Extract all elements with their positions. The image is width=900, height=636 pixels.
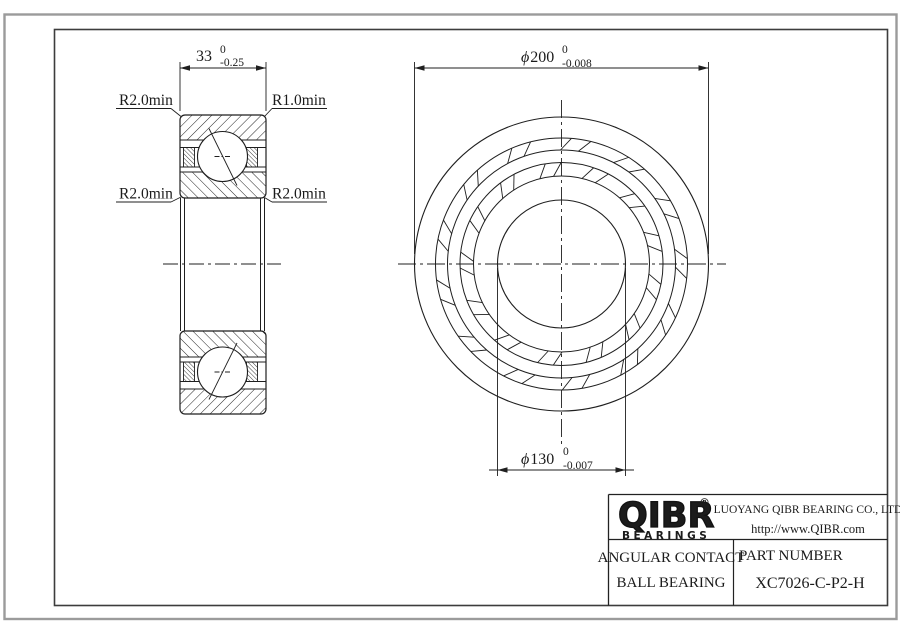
title-block: QIBR ® BEARINGS LUOYANG QIBR BEARING CO.… [598, 495, 900, 606]
front-view: ϕ200 0 -0.008 ϕ130 0 -0.007 [398, 44, 726, 476]
section-upper [180, 115, 266, 198]
part-number-label: PART NUMBER [739, 548, 843, 564]
section-view: 33 0 -0.25 R2.0min R1.0min R2.0min R2.0m… [116, 44, 327, 414]
part-number: XC7026-C-P2-H [755, 575, 865, 592]
cage-pocket-line [504, 369, 519, 375]
company-website: http://www.QIBR.com [751, 522, 865, 536]
section-lower [180, 331, 266, 414]
bore-dim-value: 130 [530, 451, 554, 468]
product-type-line2: BALL BEARING [616, 575, 725, 591]
cage-block-lower-left [184, 362, 195, 382]
cage-pocket-line [582, 374, 590, 388]
cage-pocket-line [437, 280, 451, 288]
width-dim-tol-upper: 0 [220, 44, 226, 56]
cage-block-upper-left [184, 148, 195, 168]
width-dim-value: 33 [196, 48, 212, 65]
cage-pocket-line [629, 206, 645, 208]
width-dim-tol-lower: -0.25 [220, 57, 244, 69]
cage-pocket-line [562, 378, 572, 391]
cage-pocket-line [554, 163, 562, 177]
bearing-drawing: 33 0 -0.25 R2.0min R1.0min R2.0min R2.0m… [0, 0, 900, 636]
bore-dim-tol-lower: -0.007 [563, 460, 593, 472]
cage-pocket-line [471, 350, 487, 351]
cage-pocket-line [458, 336, 474, 337]
cage-pocket-line [661, 320, 666, 335]
cage-pocket-line [595, 174, 608, 183]
cage-pocket-line [470, 220, 479, 233]
cage-pocket-line [494, 335, 509, 340]
fillet-label-mid-left: R2.0min [119, 186, 173, 203]
cage-pocket-line [461, 252, 474, 261]
cage-pocket-line [629, 169, 645, 172]
od-dim-tol-upper: 0 [562, 44, 568, 56]
cage-pocket-line [619, 194, 634, 198]
cage-pocket-line [522, 375, 535, 384]
cage-block-upper-right [247, 148, 258, 168]
bore-dim-tol-upper: 0 [563, 446, 569, 458]
cage-pocket-line [621, 360, 624, 376]
cage-pocket-line [438, 239, 448, 251]
cage-pocket-line [477, 170, 478, 186]
cage-pocket-line [675, 249, 688, 258]
cage-pocket-line [646, 288, 656, 300]
cage-pocket-line [601, 342, 603, 358]
cage-pocket-line [668, 303, 675, 317]
cage-pocket-line [626, 324, 629, 339]
registered-mark: ® [699, 496, 710, 509]
company-name: LUOYANG QIBR BEARING CO., LTD [714, 504, 900, 516]
svg-text:ϕ200: ϕ200 [521, 49, 554, 66]
product-type-line1: ANGULAR CONTACT [598, 550, 745, 566]
cage-pocket-line [467, 300, 483, 302]
cage-pocket-line [501, 183, 503, 199]
fillet-label-top-left: R2.0min [119, 92, 173, 109]
fillet-label-top-right: R1.0min [272, 92, 326, 109]
od-dim-value: 200 [530, 49, 554, 66]
cage-pocket-line [538, 351, 549, 363]
od-dim-tol-lower: -0.008 [562, 58, 592, 70]
brand-subtitle: BEARINGS [622, 530, 710, 542]
cage-pocket-line [582, 168, 594, 179]
cage-pocket-line [586, 347, 590, 362]
fillet-label-mid-right: R2.0min [272, 186, 326, 203]
cage-pocket-line [675, 267, 686, 278]
bore-lines [181, 198, 265, 331]
cage-pocket-line [634, 314, 640, 329]
cage-pocket-line [578, 141, 591, 151]
cage-pocket-line [649, 274, 661, 284]
cage-pocket-line [644, 232, 659, 236]
cage-pocket-line [540, 164, 545, 179]
cage-pocket-line [655, 198, 671, 200]
cage-pocket-line [478, 207, 485, 221]
width-dimension: 33 0 -0.25 [180, 44, 266, 111]
cage-pocket-line [648, 246, 663, 252]
od-dim-symbol: ϕ [521, 49, 529, 66]
cage-block-lower-right [247, 362, 258, 382]
cage-pocket-line [553, 352, 562, 365]
inner-frame [55, 30, 888, 606]
qibr-logo: QIBR ® BEARINGS [618, 496, 714, 542]
cage-pocket-line [614, 157, 629, 162]
drawing-sheet: 33 0 -0.25 R2.0min R1.0min R2.0min R2.0m… [0, 0, 900, 636]
bore-dim-symbol: ϕ [521, 451, 529, 468]
cage-pocket-line [561, 138, 572, 150]
cage-pocket-line [507, 342, 521, 350]
cage-pocket-line [460, 268, 474, 275]
svg-text:ϕ130: ϕ130 [521, 451, 554, 468]
cage-pocket-line [464, 185, 467, 201]
cage-pocket-line [443, 220, 451, 234]
